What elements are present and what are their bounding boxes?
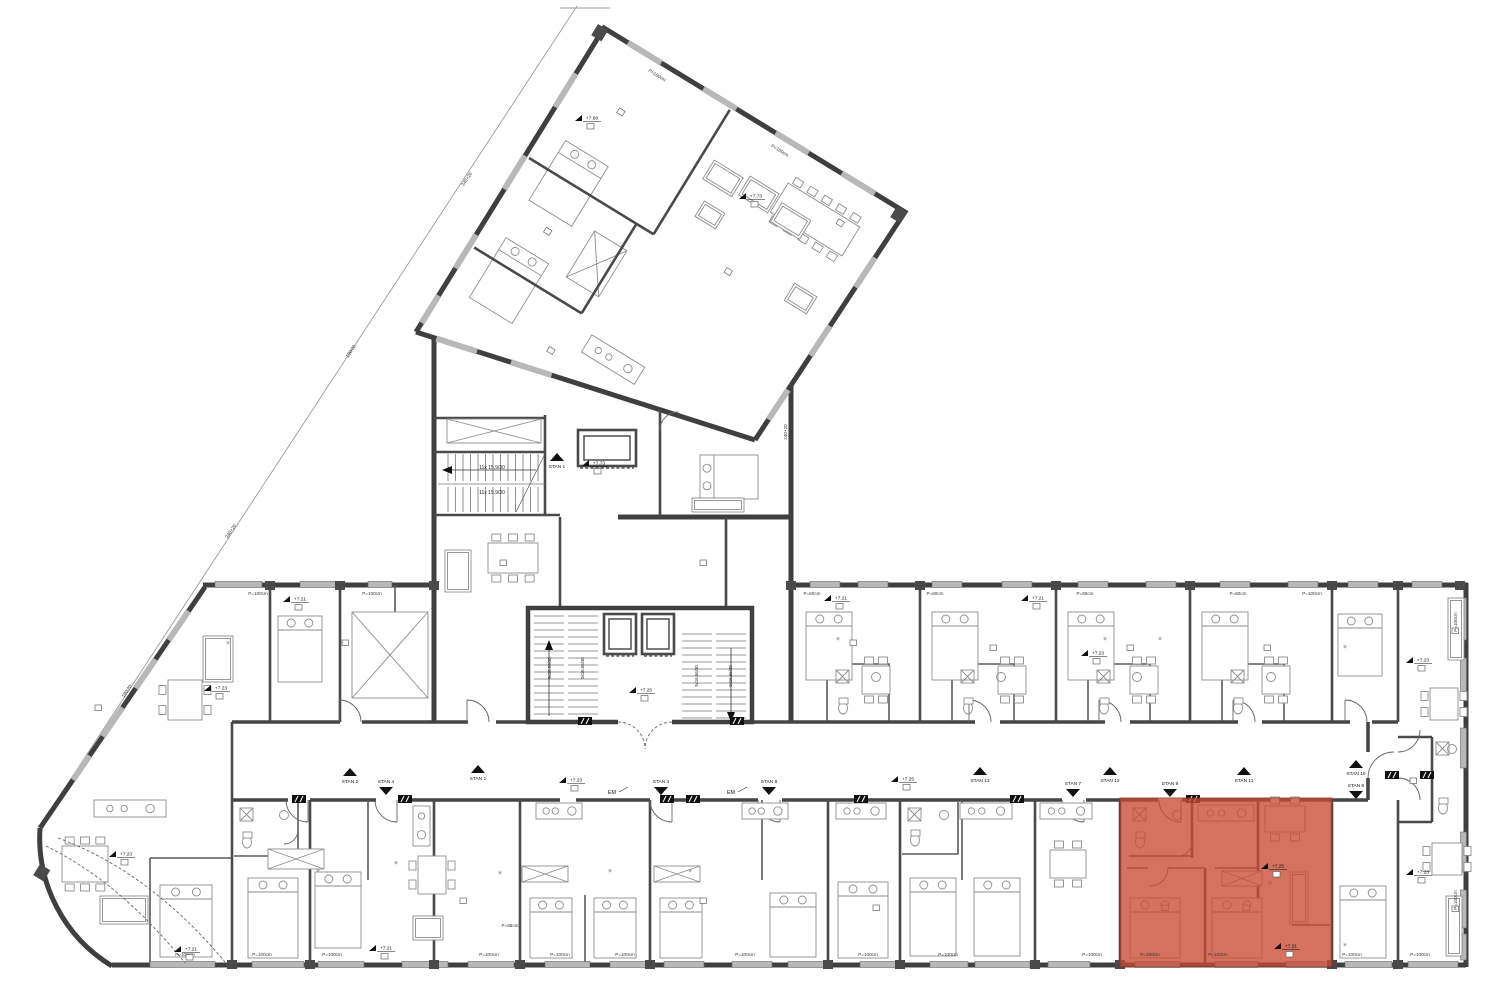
door-arc (375, 800, 397, 822)
parapet-label: P=100cm (858, 952, 878, 957)
window (504, 156, 525, 189)
furniture-sofa (695, 201, 725, 229)
furniture-ward (352, 612, 428, 698)
window (856, 258, 876, 288)
elevation-value: +7.23 (570, 778, 582, 784)
light-symbol: * (1158, 635, 1163, 647)
pier (786, 581, 796, 590)
window (402, 962, 448, 968)
furniture-sun: * (394, 859, 399, 871)
pier (429, 581, 439, 590)
parapet-label: P=60cm (1230, 591, 1247, 596)
window (1348, 582, 1378, 588)
room-tag (1127, 645, 1134, 651)
elevation-value: +7.23 (1417, 658, 1429, 664)
elevation-value: +7.21 (1032, 596, 1044, 602)
furniture-sun: * (608, 867, 613, 879)
room-tag (460, 898, 467, 904)
apartment-label: STAN 3 (653, 779, 670, 785)
room-tag (990, 645, 997, 651)
window (545, 962, 590, 968)
furniture-table (1421, 688, 1467, 720)
pier (895, 960, 905, 969)
furniture-bath (1436, 742, 1457, 814)
furniture-sun: * (1158, 635, 1163, 647)
window (511, 362, 552, 375)
apartment-label: STAN 1 (549, 464, 566, 470)
apartment-label: STAN 2 (342, 779, 359, 785)
furniture-kitchen (581, 335, 644, 384)
shaft-hatch (686, 795, 700, 803)
shaft-hatch (292, 795, 306, 803)
light-symbol: * (226, 639, 231, 651)
furniture-sun: * (836, 635, 841, 647)
furniture-sofa (784, 283, 817, 314)
floor-plan-canvas: 11x 15.9/3011x 15.9/309x16.66/309x16.66/… (0, 0, 1500, 990)
door-arc (284, 830, 298, 844)
room-tag (547, 346, 555, 354)
elevation-marker: +7.25 (629, 687, 655, 701)
parapet-label: P=60cm (1077, 591, 1094, 596)
light-symbol: * (688, 867, 693, 879)
pier (1393, 960, 1403, 969)
elevation-value: +7.25 (640, 688, 652, 694)
highlighted-apartment-stan9[interactable] (1120, 798, 1332, 967)
light-symbol: * (498, 869, 503, 881)
apartment-entrance-marker: STAN 3 (653, 779, 670, 795)
elevation-marker: +7.23 (1406, 657, 1432, 671)
furniture-kitchen (413, 806, 430, 846)
shaft-hatches (292, 717, 1434, 803)
window (103, 708, 123, 737)
light-symbol: * (836, 635, 841, 647)
apartment-entrance-marker: STAN 7 (1065, 781, 1082, 797)
furniture-table (409, 856, 455, 894)
pier (265, 581, 275, 590)
elevation-value: +7.21 (1285, 944, 1297, 950)
door-arc (1398, 730, 1420, 752)
pier (305, 960, 315, 969)
pier (1051, 581, 1061, 590)
shaft-hatch (1420, 771, 1434, 779)
furniture-kitchen (1040, 803, 1092, 819)
pier (1030, 960, 1040, 969)
furniture-sun: * (1103, 635, 1108, 647)
shaft-hatch (578, 717, 592, 725)
door-arc (339, 700, 361, 722)
pier (1393, 581, 1403, 590)
window (368, 582, 392, 588)
furniture-sun: * (316, 867, 321, 879)
furniture-bed (770, 893, 816, 957)
parapet-label: P=100cm (1453, 890, 1458, 910)
elevation-marker: +7.23 (559, 777, 585, 791)
furniture-sofa (445, 550, 471, 592)
apartment-entrance-marker: STAN 11 (1235, 767, 1254, 784)
furniture-table (62, 837, 108, 891)
window (215, 582, 262, 588)
parapet-label: P=100cm (550, 952, 570, 957)
room-tag (342, 640, 349, 646)
elevation-value: +7.73 (750, 194, 762, 200)
window (860, 962, 896, 968)
furniture-bath (908, 808, 949, 846)
apartment-entrance-marker: STAN 2 (342, 768, 359, 785)
elevation-value: +7.21 (185, 947, 197, 953)
window (1048, 962, 1090, 968)
furniture-bed (594, 898, 636, 958)
parapet-label: P=100cm (1453, 612, 1458, 632)
furniture-table (1050, 841, 1086, 887)
furniture-sofa (692, 498, 744, 512)
window (610, 962, 646, 968)
elevation-value: +7.23 (215, 686, 227, 692)
furniture-sun: * (688, 867, 693, 879)
apartment-entrance-marker: STAN 1 (470, 765, 487, 782)
parapet-label: 240+20 (460, 171, 473, 187)
furniture-bed (248, 878, 298, 958)
window (1408, 962, 1458, 968)
window (252, 962, 304, 968)
furniture-kitchen (960, 803, 1012, 819)
window (1461, 728, 1467, 768)
furniture-table (488, 534, 538, 582)
window (1220, 582, 1250, 588)
window (1412, 582, 1442, 588)
shaft-hatch (854, 795, 868, 803)
window (769, 390, 789, 420)
elevation-marker: +7.21 (824, 595, 850, 609)
stair-run-label: 11x 15.9/30 (479, 490, 505, 496)
window (300, 582, 336, 588)
elevation-value: +7.23 (1417, 870, 1429, 876)
window (455, 235, 476, 268)
apartment-entrance-marker: STAN 4 (378, 779, 395, 795)
light-symbol: * (316, 867, 321, 879)
apartment-label: STAN 8 (761, 779, 778, 785)
angled-wing-interior: P=100cmP=100cm (448, 34, 877, 457)
window (810, 582, 840, 588)
window (842, 173, 875, 193)
parapet-label: P=85cm (502, 923, 519, 928)
room-tag (724, 268, 732, 276)
window (1288, 582, 1318, 588)
shaft-hatch (1385, 771, 1399, 779)
window (930, 962, 968, 968)
furniture-bed (160, 885, 212, 957)
parapet-label: P=100cm (770, 143, 789, 158)
apartment-entrance-marker: STAN 8 (761, 779, 778, 795)
stair-run-label: 9x16.66/30 (728, 665, 733, 687)
window (318, 962, 364, 968)
pier (823, 960, 833, 969)
room-tag (617, 108, 625, 116)
window (975, 962, 1030, 968)
elevation-marker: +7.21 (369, 945, 395, 959)
apartment-entrance-marker: STAN 6 (1348, 783, 1365, 799)
stair-core (528, 608, 752, 749)
parapet-label: P=100cm (735, 952, 755, 957)
apartment-label: STAN 12 (1100, 778, 1119, 784)
window (73, 756, 90, 780)
furniture-ward (268, 849, 324, 869)
furniture-ward (654, 866, 700, 882)
elevation-marker: +7.25 (891, 776, 917, 790)
apartment-label: STAN 1 (470, 776, 487, 782)
furniture-ward (522, 866, 568, 882)
room-tag (850, 640, 857, 646)
light-symbol: * (394, 859, 399, 871)
furniture-bed (660, 898, 702, 958)
parapet-label: P=100cm (1410, 952, 1430, 957)
elevation-value: +7.23 (1092, 651, 1104, 657)
elevation-value: +7.21 (294, 597, 306, 603)
room-tag (1410, 778, 1417, 784)
stair-run-label: 9x16.66/30 (694, 665, 699, 687)
window (788, 962, 824, 968)
window (150, 962, 215, 968)
elevation-marker: +7.23 (1406, 869, 1432, 883)
apartment-entrance-marker: STAN 13 (970, 767, 989, 784)
parapet-label: P=60cm (804, 591, 821, 596)
parapet-label: P=100cm (1140, 952, 1160, 957)
window (422, 296, 439, 323)
furniture-ward (447, 419, 541, 443)
apartment-entrance-marker: STAN 9 (1162, 781, 1179, 797)
shaft-hatch (730, 717, 744, 725)
pier (335, 581, 345, 590)
parapet-label: P=100cm (252, 952, 272, 957)
window (1345, 962, 1392, 968)
parapet-label: P=100cm (648, 68, 667, 83)
parapet-label: P=100cm (479, 952, 499, 957)
parapet-label: P=60cm (927, 591, 944, 596)
stair-run-label: 9x16.66/30 (547, 657, 552, 679)
parapet-label: 240+20 (224, 523, 237, 539)
furniture-sun: * (1343, 643, 1348, 655)
pier (645, 960, 655, 969)
furniture-bed (530, 898, 572, 958)
parapet-label: P=100cm (938, 952, 958, 957)
shaft-hatch (398, 795, 412, 803)
em-label: EM (727, 790, 736, 796)
elevation-value: +7.25 (902, 777, 914, 783)
apartment-label: STAN 11 (1235, 778, 1254, 784)
room-tag (500, 560, 507, 566)
furniture-sun: * (226, 639, 231, 651)
apartment-label: STAN 4 (378, 779, 395, 785)
furniture-bed (278, 616, 322, 682)
furniture-bed (315, 872, 361, 948)
window (664, 962, 704, 968)
pier (1185, 581, 1195, 590)
parapet-label: 240+20 (783, 424, 788, 440)
elevation-value: +7.23 (120, 852, 132, 858)
furniture-sun: * (498, 869, 503, 881)
parapet-label: P=100cm (362, 591, 382, 596)
window (1078, 582, 1108, 588)
window (468, 962, 514, 968)
elevation-marker: +7.21 (1021, 595, 1047, 609)
stair-run-label: 11x 15.9/30 (479, 465, 505, 471)
furniture-kitchen (94, 800, 166, 817)
apartment-label: STAN 10 (1346, 771, 1365, 777)
elevation-value: +7.73 (593, 461, 605, 467)
apartment-label: STAN 13 (970, 778, 989, 784)
parapet-label: P=100cm (1208, 952, 1228, 957)
light-symbol: * (1103, 635, 1108, 647)
em-label: EM (608, 790, 617, 796)
floorplan-document: 11x 15.9/3011x 15.9/309x16.66/309x16.66/… (0, 0, 1500, 990)
room-tag (873, 905, 880, 911)
pier (1327, 581, 1337, 590)
parapet-label: P=100cm (1342, 952, 1362, 957)
window (628, 43, 661, 63)
pier (429, 960, 439, 969)
room-tag (700, 560, 707, 566)
elevation-marker: +7.68 (575, 115, 601, 129)
window (1002, 582, 1032, 588)
light-symbol: * (608, 867, 613, 879)
parapet-label: 180/20 (345, 344, 357, 359)
furniture-sofa (413, 916, 443, 940)
window (811, 326, 831, 356)
furniture-kitchen (536, 803, 582, 819)
apartment-label: STAN 7 (1065, 781, 1082, 787)
window (555, 74, 576, 107)
pier (1455, 581, 1465, 590)
elevation-value: +7.25 (1272, 864, 1284, 870)
window (436, 338, 477, 351)
window (858, 582, 888, 588)
window (732, 962, 772, 968)
parapet-label: P=100cm (248, 591, 268, 596)
apartment-entrance-marker: STAN 12 (1100, 767, 1119, 784)
parapet-label: P=100cm (322, 952, 342, 957)
pier (515, 960, 525, 969)
corridor-walls (232, 722, 1398, 800)
apartment-label: STAN 6 (1348, 783, 1365, 789)
shaft-hatch (660, 795, 674, 803)
door-arc (467, 700, 489, 722)
pier (890, 206, 907, 223)
elevation-marker: +7.21 (283, 596, 309, 610)
door-arc (286, 800, 308, 822)
furniture-bath (240, 808, 289, 848)
elevation-value: +7.21 (380, 946, 392, 952)
furniture-kitchen (742, 803, 788, 819)
elevation-value: +7.68 (586, 116, 598, 122)
furniture-sofa (100, 896, 148, 924)
room-tag (544, 227, 552, 235)
window (703, 89, 736, 109)
apartment-entrance-marker: STAN 10 (1346, 760, 1365, 777)
apartment-entrance-marker: STAN 1 (549, 453, 566, 470)
light-symbol: * (1343, 643, 1348, 655)
window (932, 582, 962, 588)
room-tag (700, 898, 707, 904)
door-arc (650, 800, 672, 822)
elevation-value: +7.21 (835, 596, 847, 602)
pier (227, 960, 237, 969)
furniture-kitchen (836, 803, 886, 819)
door-arc (1345, 700, 1367, 722)
apartment-label: STAN 9 (1162, 781, 1179, 787)
parapet-label: P=100cm (1302, 591, 1322, 596)
room-tag (95, 705, 102, 711)
parapet-label: P=100cm (615, 952, 635, 957)
furniture-bed (700, 455, 758, 499)
furniture-bed (974, 878, 1020, 956)
elevation-marker: +7.23 (109, 851, 135, 865)
furniture-table (159, 680, 211, 720)
parapet-label: P=100cm (1082, 952, 1102, 957)
furniture-sofa (703, 160, 743, 197)
pier (915, 581, 925, 590)
shaft-hatch (1010, 795, 1024, 803)
stair-run-label: 9x16.66/30 (580, 657, 585, 679)
window (1146, 582, 1176, 588)
furniture-bed (838, 882, 888, 958)
window (136, 659, 156, 688)
room-tag (1264, 645, 1271, 651)
furniture-bed (910, 878, 956, 956)
